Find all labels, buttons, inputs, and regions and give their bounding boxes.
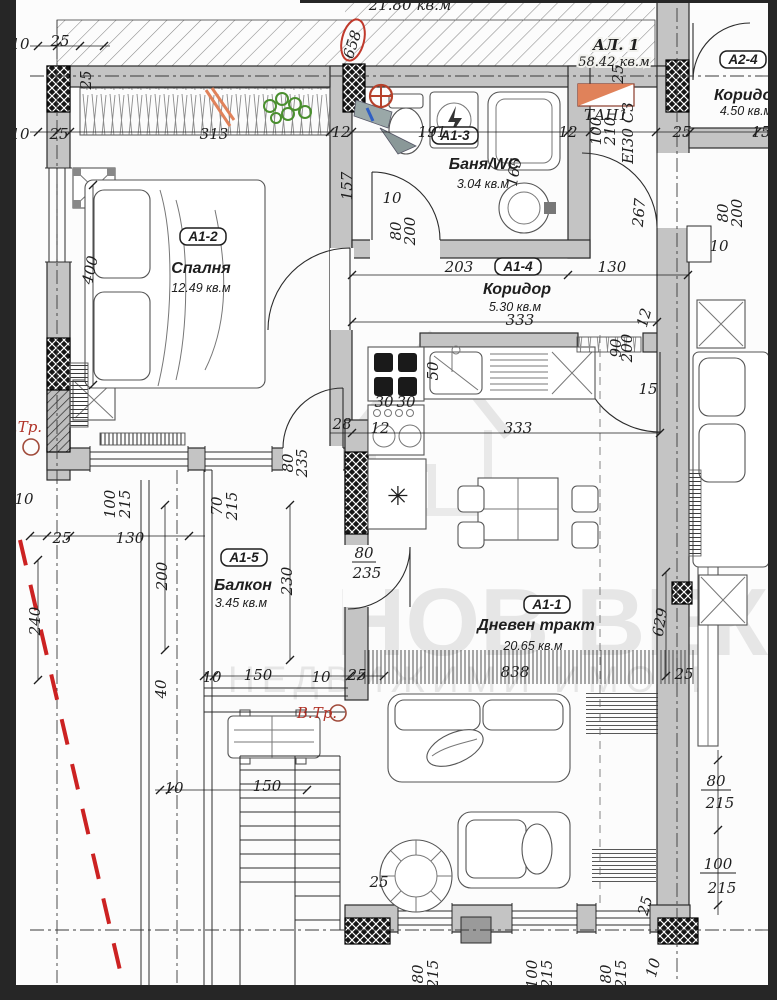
sofa [388,694,570,782]
radiator [70,363,88,427]
room-area: 3.04 кв.м [457,177,510,191]
dimension-label: 12 [370,419,389,437]
dimension-label: 215 [705,794,735,812]
dimension-label: 25 [673,665,693,683]
dimension-label: 10 [202,668,222,686]
dimension-label: 100 [704,855,733,873]
dimension-label: 215 [116,490,134,520]
bedroom-bottom-window-2 [205,446,272,472]
room-area: 20.65 кв.м [502,639,563,653]
dimension-label: 215 [223,492,241,522]
dimension-label: EI30 C3 [619,102,637,165]
dimension-label: 25 [671,123,691,141]
dimension-label: 25 [609,64,627,84]
room-name: Коридор [714,87,777,104]
bedroom-left-window [45,168,72,262]
dimension-label: 130 [116,529,145,547]
dimension-label: 10 [709,237,729,255]
dimension-label: 25 [368,873,388,891]
floor-plan-drawing: НОВ ВЕК НЕДВИЖИМИ ИМОТИ [0,0,777,1000]
plant [586,690,658,884]
room-id-badge: A1-5 [228,550,259,565]
dimension-label: 15 [638,380,657,398]
dimension-label: 130 [598,258,627,276]
dimension-label: 200 [618,333,636,363]
survey-cross-icon [370,85,392,107]
room-id-badge: A1-1 [531,597,561,612]
dimension-label: 150 [244,666,273,684]
dimension-label: 838 [501,663,530,681]
dimension-label: 28 [331,415,351,433]
dimension-label: 215 [424,960,442,990]
room-area: 12.49 кв.м [171,281,231,295]
room-name: Коридор [483,281,551,298]
dimension-label: 12 [331,123,350,141]
dimension-label: 313 [200,125,229,143]
dimension-label: 25 [77,70,95,90]
shaft-circle-left [23,439,39,455]
dimension-label: 333 [506,311,535,329]
room-id-badge: A1-2 [187,229,218,244]
dimension-label: 10 [642,956,664,980]
room-id-badge: A2-4 [727,52,758,67]
armchair [458,812,570,888]
dimension-label: 215 [612,960,630,990]
dimension-label: 267 [629,197,650,229]
dimension-label: 25 [48,125,68,143]
dimension-label: 191 [418,123,447,141]
bedroom-bottom-window-1 [90,446,188,472]
room-label-hall: A1-4 Коридор 5.30 кв.м [483,258,551,314]
dimension-label: 333 [504,419,533,437]
dimension-label: 10 [382,189,402,207]
dining-table [458,478,598,548]
dimension-label: 10 [311,668,331,686]
room-label-a2-corridor: A2-4 Коридор 4.50 кв.м [714,51,777,118]
dimension-label: 150 [253,777,282,795]
dimension-label: 80 [354,544,374,562]
dimension-label: 25 [49,32,69,50]
dimension-label: 157 [338,171,356,200]
living-bottom-window-2 [512,903,577,934]
dimension-label: 30 [396,393,416,411]
room-id-badge: A1-4 [502,259,533,274]
radiator [100,433,185,445]
dimension-label: 10 [164,779,184,797]
dimension-label: 215 [538,960,556,990]
dimension-label: 12 [558,123,577,141]
room-area: 3.45 кв.м [215,596,268,610]
dimension-label: 240 [26,606,44,636]
dimension-label: 203 [444,258,474,276]
dimension-label: 50 [424,361,442,381]
room-name: Дневен тракт [475,617,595,634]
coffee-table [380,840,452,912]
dimension-label: 12 [633,306,655,329]
room-name: Балкон [214,577,272,594]
room-area: 4.50 кв.м [720,104,773,118]
room-label-balcony: A1-5 Балкон 3.45 кв.м [214,549,272,610]
dimension-label: 200 [401,216,419,246]
dimension-label: 210 [601,116,619,146]
kitchen-counter [424,346,595,399]
dimension-label: 230 [278,566,296,596]
dimension-label: 235 [352,564,382,582]
dimension-label: В.Тр. [296,704,337,722]
dimension-label: 25 [51,529,71,547]
dimension-label: 200 [728,198,746,228]
apartment-label: АЛ. 1 [592,36,639,54]
dimension-label: 15 [751,123,770,141]
dimension-label: 30 [374,393,394,411]
dimension-label: 80 [706,772,726,790]
dimension-label: 235 [293,449,311,479]
room-label-bedroom: A1-2 Спалня 12.49 кв.м [171,228,231,295]
room-name: Спалня [171,260,231,277]
dimension-label: 10 [14,490,34,508]
dimension-label: 200 [153,561,171,591]
floor-plan-page: НОВ ВЕК НЕДВИЖИМИ ИМОТИ [0,0,777,1000]
dimension-label: 40 [152,679,170,700]
dimension-label: 25 [346,666,366,684]
dimension-label: 215 [707,879,737,897]
fridge: ✳ [368,459,426,529]
fridge-star-icon: ✳ [387,481,409,511]
